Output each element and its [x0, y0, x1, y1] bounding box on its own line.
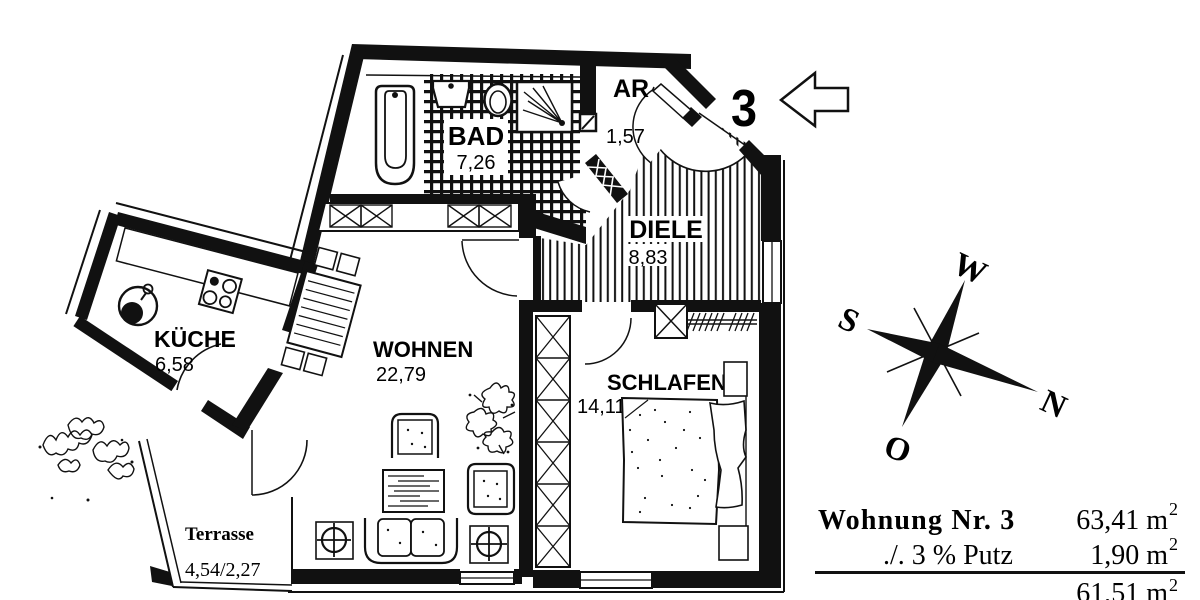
- svg-text:63,41 m: 63,41 m: [1076, 505, 1168, 536]
- svg-text:AR: AR: [613, 75, 649, 103]
- svg-text:WOHNEN: WOHNEN: [373, 337, 473, 362]
- svg-text:BAD: BAD: [448, 121, 504, 151]
- svg-text:6,58: 6,58: [155, 354, 194, 376]
- svg-text:3: 3: [731, 80, 757, 138]
- svg-text:1,57: 1,57: [606, 126, 645, 148]
- svg-text:DIELE: DIELE: [629, 216, 703, 244]
- svg-text:1,90 m: 1,90 m: [1090, 540, 1168, 571]
- svg-text:2: 2: [1169, 499, 1178, 519]
- svg-text:Terrasse: Terrasse: [185, 524, 254, 545]
- svg-text:2: 2: [1169, 575, 1178, 595]
- svg-text:2: 2: [1169, 534, 1178, 554]
- svg-text:22,79: 22,79: [376, 364, 426, 386]
- svg-text:7,26: 7,26: [457, 152, 496, 174]
- svg-text:4,54/2,27: 4,54/2,27: [185, 559, 261, 581]
- svg-text:14,11: 14,11: [577, 396, 626, 418]
- svg-text:Wohnung Nr. 3: Wohnung Nr. 3: [818, 505, 1015, 536]
- svg-text:8,83: 8,83: [629, 247, 668, 269]
- svg-text:61,51 m: 61,51 m: [1076, 578, 1168, 600]
- svg-text:KÜCHE: KÜCHE: [154, 326, 236, 352]
- svg-text:./. 3 % Putz: ./. 3 % Putz: [883, 540, 1013, 571]
- svg-text:SCHLAFEN: SCHLAFEN: [607, 370, 727, 395]
